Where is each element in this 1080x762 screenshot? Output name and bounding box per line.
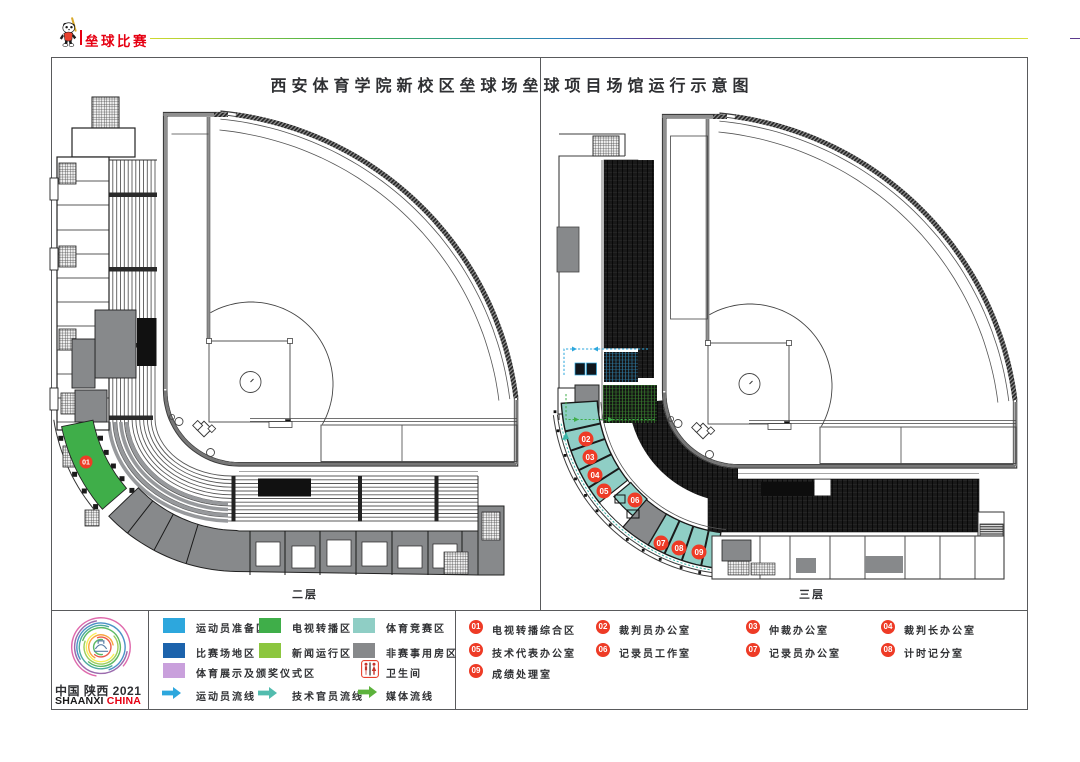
svg-text:二层: 二层 [292, 588, 318, 601]
svg-text:02: 02 [582, 435, 591, 444]
svg-text:07: 07 [657, 539, 666, 548]
svg-text:01: 01 [82, 460, 90, 467]
svg-text:08: 08 [675, 544, 684, 553]
svg-text:06: 06 [631, 496, 640, 505]
svg-text:三层: 三层 [799, 588, 825, 601]
svg-text:05: 05 [600, 487, 609, 496]
svg-text:04: 04 [591, 471, 600, 480]
svg-text:03: 03 [586, 453, 595, 462]
svg-text:09: 09 [695, 548, 704, 557]
